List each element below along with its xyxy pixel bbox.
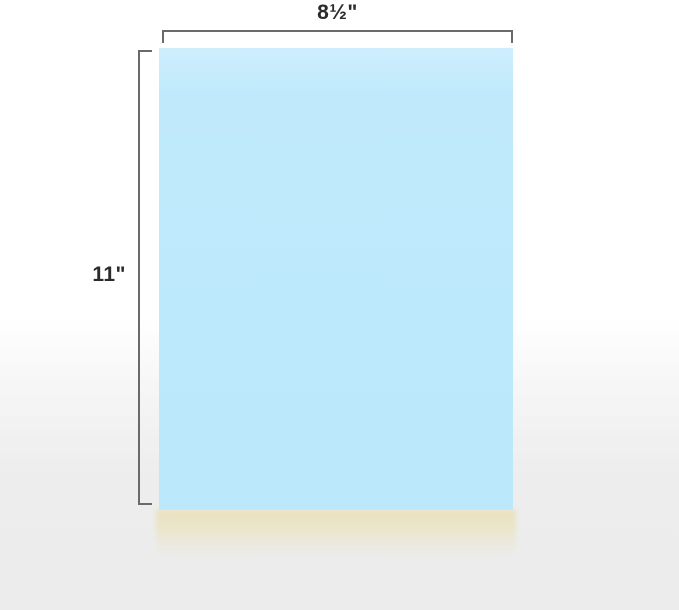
product-diagram: 8½" 11" bbox=[0, 0, 679, 610]
height-dimension-label: 11" bbox=[80, 263, 126, 287]
width-dimension-line bbox=[162, 30, 513, 43]
height-dimension-line bbox=[138, 50, 152, 505]
blue-paper-sheet bbox=[159, 48, 513, 510]
width-dimension-label: 8½" bbox=[162, 1, 513, 25]
ream-edge bbox=[156, 510, 516, 556]
